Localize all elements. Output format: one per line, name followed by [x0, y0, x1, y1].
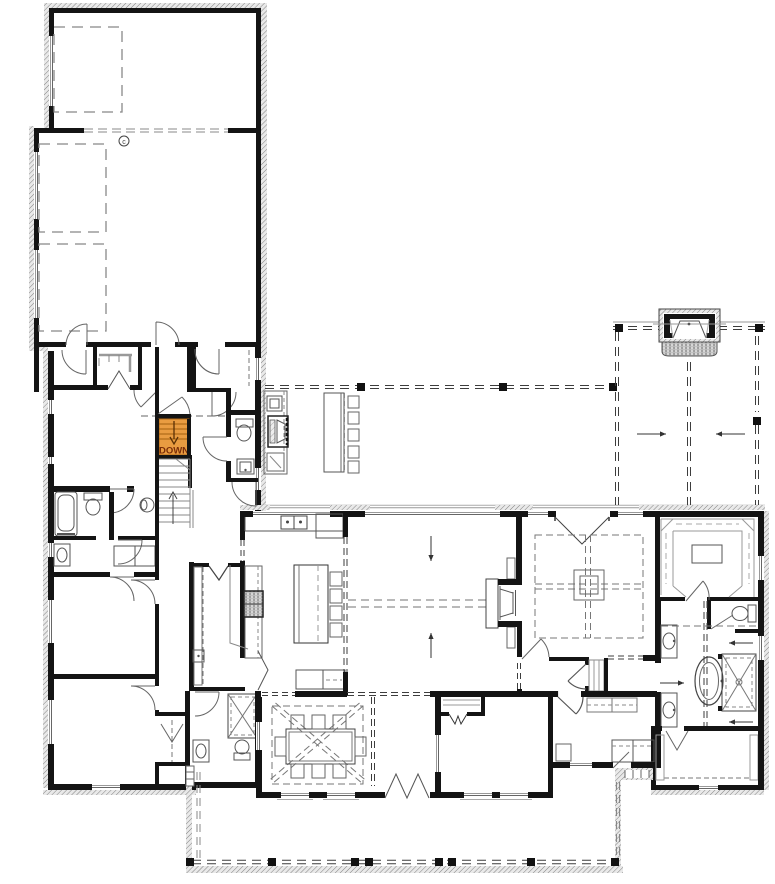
- svg-text:DOWN: DOWN: [159, 446, 189, 457]
- svg-text:c: c: [122, 139, 126, 146]
